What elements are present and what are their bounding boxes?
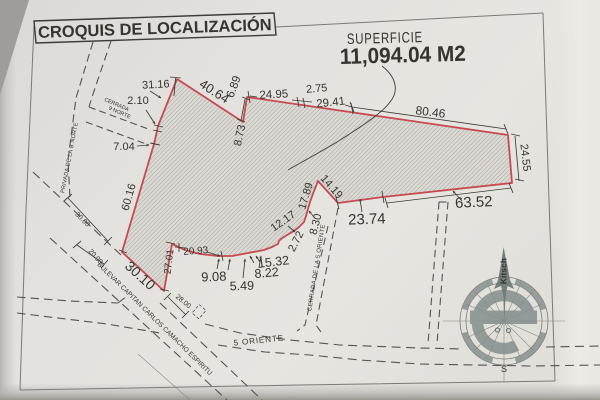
svg-text:5.49: 5.49 (229, 279, 254, 294)
svg-text:63.52: 63.52 (455, 193, 493, 212)
svg-text:9.08: 9.08 (201, 269, 227, 285)
svg-text:8.22: 8.22 (254, 265, 280, 281)
svg-text:Kitsch: Kitsch (500, 258, 509, 284)
svg-text:24.95: 24.95 (259, 88, 288, 101)
svg-text:20.93: 20.93 (183, 245, 209, 258)
svg-text:7.04: 7.04 (113, 141, 134, 153)
svg-text:2.10: 2.10 (127, 95, 148, 107)
svg-text:11,094.04 M2: 11,094.04 M2 (339, 41, 466, 69)
svg-text:2.75: 2.75 (306, 82, 328, 96)
svg-text:23.74: 23.74 (348, 210, 386, 228)
svg-text:31.16: 31.16 (142, 78, 170, 91)
svg-text:S: S (501, 364, 507, 374)
